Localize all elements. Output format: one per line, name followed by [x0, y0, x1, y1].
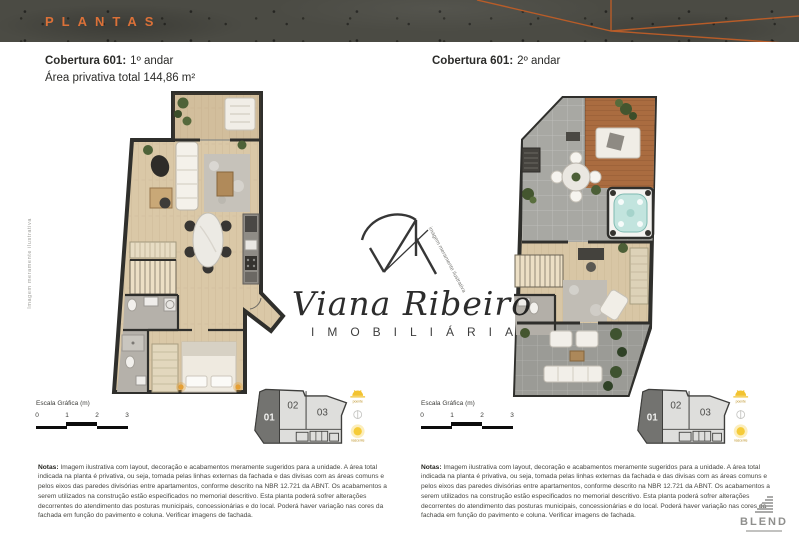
stairs: [130, 242, 176, 294]
scale-graphic: [421, 422, 513, 429]
notes-label: Notas:: [421, 464, 442, 471]
vr-monogram-icon: [354, 208, 444, 288]
unit-02-label: 02: [287, 401, 298, 412]
keyplan-left: 01 02 03 poente nascente: [250, 388, 370, 449]
notes-left: Notas: Imagem ilustrativa com layout, de…: [38, 463, 392, 522]
unit-03-label: 03: [700, 408, 711, 419]
unit-01-label: 01: [264, 412, 275, 423]
scale-ticks: 0 1 2 3: [421, 412, 541, 420]
left-area-label: Área privativa total 144,86 m²: [45, 72, 195, 84]
svg-text:nascente: nascente: [351, 439, 365, 443]
sunset-icon: poente: [733, 390, 748, 403]
brochure-page: PLANTAS Cobertura 601:1º andar Área priv…: [0, 0, 799, 560]
sun-icon: nascente: [734, 424, 748, 442]
unit-02-label: 02: [670, 401, 681, 412]
left-panel-header: Cobertura 601:1º andar Área privativa to…: [45, 55, 195, 84]
notes-text: Imagem ilustrativa com layout, decoração…: [421, 464, 770, 520]
scale-graphic: [36, 422, 128, 429]
right-panel-header: Cobertura 601:2º andar: [432, 55, 560, 67]
scale-label: Escala Gráfica (m): [36, 400, 156, 407]
right-floor-label: 2º andar: [517, 55, 560, 67]
notes-text: Imagem ilustrativa com layout, decoração…: [38, 464, 387, 520]
scale-bar-left: Escala Gráfica (m) 0 1 2 3: [36, 400, 156, 429]
compass-icon: [737, 410, 745, 419]
svg-text:nascente: nascente: [734, 439, 748, 443]
notes-right: Notas: Imagem ilustrativa com layout, de…: [421, 463, 775, 522]
developer-tagline-bar: [746, 530, 782, 532]
watermark-script: Viana Ribeiro: [262, 284, 562, 323]
sunset-icon: poente: [350, 390, 365, 403]
jacuzzi: [608, 188, 653, 238]
compass-icon: [354, 410, 362, 419]
unit-03-label: 03: [317, 408, 328, 419]
kitchen-counter: [243, 214, 259, 284]
sun-icon: nascente: [351, 424, 365, 442]
developer-logo: BLEND: [733, 495, 795, 532]
brand-lines-graphic: [0, 0, 799, 42]
developer-name: BLEND: [733, 516, 795, 528]
unit-01-label: 01: [647, 412, 658, 423]
top-band: PLANTAS: [0, 0, 799, 42]
notes-label: Notas:: [38, 464, 59, 471]
scale-bar-right: Escala Gráfica (m) 0 1 2 3: [421, 400, 541, 429]
left-title: Cobertura 601:: [45, 55, 126, 67]
watermark: imagem meramente ilustrativa Viana Ribei…: [262, 196, 562, 371]
blend-fan-icon: [752, 495, 776, 515]
watermark-caps: IMOBILIÁRIA: [262, 325, 562, 339]
keyplan-right: 01 02 03 poente nascente: [633, 388, 753, 449]
svg-text:poente: poente: [736, 399, 746, 403]
floorplan-first-floor: [82, 90, 292, 400]
side-disclaimer: Imagem meramente ilustrativa: [27, 218, 33, 309]
scale-ticks: 0 1 2 3: [36, 412, 156, 420]
svg-text:poente: poente: [353, 399, 363, 403]
scale-label: Escala Gráfica (m): [421, 400, 541, 407]
right-title: Cobertura 601:: [432, 55, 513, 67]
left-floor-label: 1º andar: [130, 55, 173, 67]
